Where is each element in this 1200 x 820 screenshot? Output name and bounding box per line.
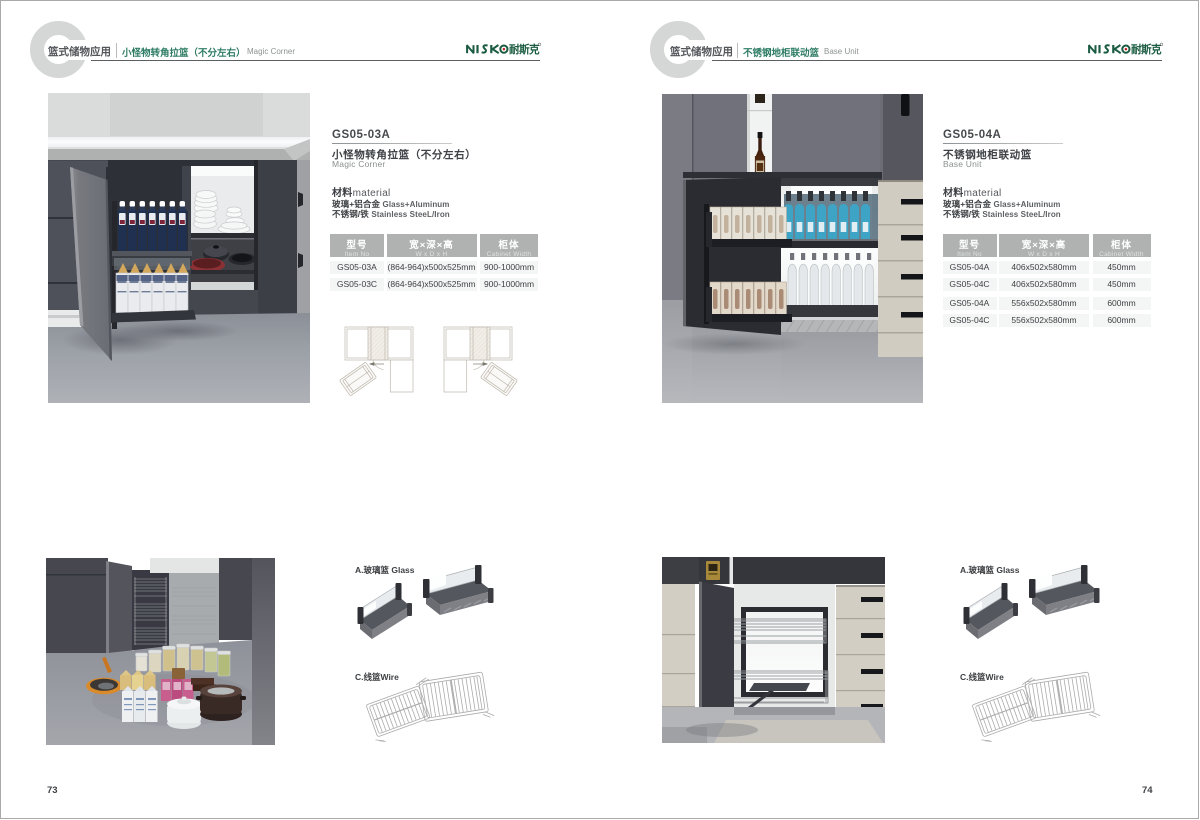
svg-text:耐斯克: 耐斯克 xyxy=(509,43,540,56)
svg-text:耐斯克: 耐斯克 xyxy=(1131,43,1162,56)
